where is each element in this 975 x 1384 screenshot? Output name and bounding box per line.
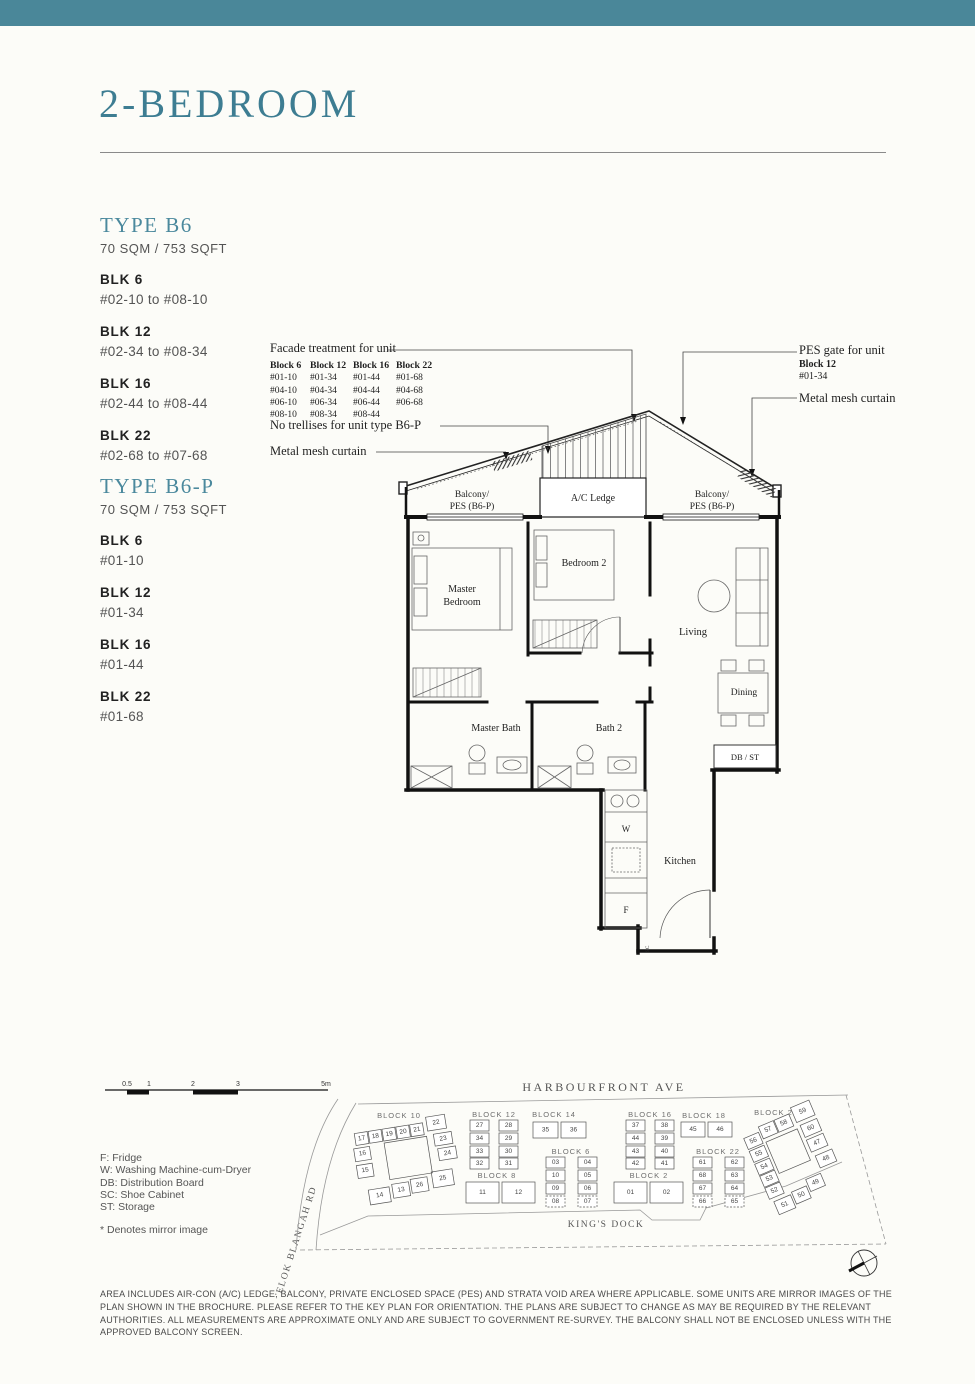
facade-label: Facade treatment for unit	[270, 341, 441, 355]
balcony-left-label2: PES (B6-P)	[450, 501, 495, 512]
type-b6-heading: TYPE B6	[100, 213, 270, 237]
block-22: BLOCK 22 61 62 68 63 67 64 66 65	[693, 1147, 744, 1207]
master-bedroom-label2: Bedroom	[443, 597, 480, 608]
bedside-table	[413, 532, 429, 545]
legend: F: Fridge W: Washing Machine-cum-Dryer D…	[100, 1152, 251, 1237]
blk-name: BLK 6	[100, 533, 270, 549]
svg-text:34: 34	[476, 1135, 484, 1142]
svg-text:33: 33	[476, 1148, 484, 1155]
svg-text:36: 36	[570, 1127, 578, 1134]
facade-cell: #01-44	[353, 372, 396, 384]
svg-text:30: 30	[505, 1148, 513, 1155]
washer-label: W	[622, 824, 631, 834]
trellis	[542, 414, 646, 478]
shoe-cabinet-label: SC	[645, 945, 651, 952]
svg-text:12: 12	[515, 1189, 523, 1196]
svg-text:66: 66	[699, 1198, 707, 1205]
fridge-label: F	[623, 905, 628, 915]
master-bath-label: Master Bath	[471, 723, 520, 734]
db-st-label: DB / ST	[731, 752, 760, 762]
facade-cell: #04-34	[310, 385, 353, 397]
svg-text:32: 32	[476, 1160, 484, 1167]
bath2-label: Bath 2	[596, 723, 622, 734]
svg-text:27: 27	[476, 1122, 484, 1129]
svg-text:BLOCK 8: BLOCK 8	[478, 1171, 517, 1180]
blk-name: BLK 6	[100, 272, 270, 288]
street-harbourfront: HARBOURFRONT AVE	[522, 1080, 685, 1094]
svg-text:BLOCK 10: BLOCK 10	[377, 1111, 421, 1120]
ac-ledge-label: A/C Ledge	[571, 493, 616, 504]
blk-range: #01-10	[100, 553, 270, 569]
legend-item: SC: Shoe Cabinet	[100, 1189, 251, 1201]
blk-range: #01-34	[100, 605, 270, 621]
block-6: BLOCK 6 03 04 10 05 09 06 08 07	[546, 1147, 597, 1207]
blk-group: BLK 22 #01-68	[100, 689, 270, 725]
svg-text:24: 24	[443, 1149, 452, 1157]
svg-text:39: 39	[661, 1135, 669, 1142]
svg-text:1: 1	[147, 1081, 151, 1088]
mesh-left-annotation: Metal mesh curtain	[270, 444, 367, 458]
svg-text:26: 26	[415, 1181, 424, 1189]
facade-cell: #06-44	[353, 397, 396, 409]
street-kings-dock: KING'S DOCK	[568, 1220, 645, 1230]
svg-text:31: 31	[505, 1160, 513, 1167]
block-10: BLOCK 10 17 18 19 20 21 22 23 24 25 26 1…	[351, 1111, 463, 1206]
svg-text:06: 06	[584, 1185, 592, 1192]
svg-text:BLOCK 12: BLOCK 12	[472, 1110, 516, 1119]
svg-text:42: 42	[632, 1160, 640, 1167]
svg-text:02: 02	[663, 1189, 671, 1196]
svg-text:BLOCK 2: BLOCK 2	[630, 1171, 669, 1180]
dining-label: Dining	[731, 688, 758, 698]
balcony-right-label: Balcony/	[695, 490, 730, 500]
legend-item: F: Fridge	[100, 1152, 251, 1164]
facade-col-header: Block 22	[396, 360, 441, 372]
blk-name: BLK 12	[100, 585, 270, 601]
blk-group: BLK 12 #01-34	[100, 585, 270, 621]
svg-text:01: 01	[627, 1189, 635, 1196]
blk-name: BLK 16	[100, 637, 270, 653]
svg-text:03: 03	[552, 1159, 560, 1166]
blk-range: #02-34 to #08-34	[100, 344, 270, 360]
blk-name: BLK 22	[100, 428, 270, 444]
svg-text:08: 08	[552, 1198, 560, 1205]
svg-text:BLOCK 6: BLOCK 6	[552, 1147, 591, 1156]
svg-text:20: 20	[399, 1128, 408, 1136]
svg-text:62: 62	[731, 1159, 739, 1166]
sofa	[736, 548, 768, 646]
svg-text:22: 22	[432, 1119, 441, 1127]
facade-cell: #06-68	[396, 397, 441, 409]
svg-text:63: 63	[731, 1172, 739, 1179]
svg-text:18: 18	[371, 1132, 380, 1140]
blk-group: BLK 12 #02-34 to #08-34	[100, 324, 270, 360]
interior-walls	[408, 523, 652, 790]
svg-text:44: 44	[632, 1135, 640, 1142]
svg-text:67: 67	[699, 1185, 707, 1192]
facade-col-header: Block 12	[310, 360, 353, 372]
living-label: Living	[679, 627, 708, 638]
no-trellis-annotation: No trellises for unit type B6-P	[270, 418, 421, 432]
blk-name: BLK 22	[100, 689, 270, 705]
svg-text:38: 38	[661, 1122, 669, 1129]
svg-text:28: 28	[505, 1122, 513, 1129]
svg-text:45: 45	[689, 1126, 697, 1133]
mirror-note: * Denotes mirror image	[100, 1224, 251, 1236]
master-bath-fixtures	[411, 745, 527, 788]
svg-text:35: 35	[542, 1127, 550, 1134]
svg-text:64: 64	[731, 1185, 739, 1192]
bath2-fixtures	[538, 745, 636, 788]
svg-text:13: 13	[397, 1186, 406, 1194]
facade-cell: #01-68	[396, 372, 441, 384]
svg-text:3: 3	[236, 1081, 240, 1088]
svg-text:65: 65	[731, 1198, 739, 1205]
svg-text:21: 21	[413, 1126, 422, 1134]
svg-text:04: 04	[584, 1159, 592, 1166]
legend-item: W: Washing Machine-cum-Dryer	[100, 1164, 251, 1176]
pes-gate-annotation: PES gate for unit Block 12 #01-34	[799, 343, 885, 383]
blk-group: BLK 6 #02-10 to #08-10	[100, 272, 270, 308]
block-14: BLOCK 14 35 36	[532, 1110, 586, 1138]
svg-text:40: 40	[661, 1148, 669, 1155]
blk-range: #02-44 to #08-44	[100, 396, 270, 412]
blk-name: BLK 16	[100, 376, 270, 392]
entrance-door	[660, 890, 710, 938]
blk-group: BLK 6 #01-10	[100, 533, 270, 569]
legend-item: DB: Distribution Board	[100, 1177, 251, 1189]
svg-text:0.5: 0.5	[122, 1081, 132, 1088]
block-2: BLOCK 2 01 02	[614, 1171, 683, 1203]
svg-text:5m: 5m	[321, 1081, 331, 1088]
facade-cell: #01-10	[270, 372, 310, 384]
blk-group: BLK 16 #02-44 to #08-44	[100, 376, 270, 412]
blk-group: BLK 22 #02-68 to #07-68	[100, 428, 270, 464]
round-table	[698, 580, 730, 612]
facade-table: Block 6 Block 12 Block 16 Block 22 #01-1…	[270, 360, 441, 421]
facade-cell: #04-10	[270, 385, 310, 397]
svg-text:41: 41	[661, 1160, 669, 1167]
mesh-right-annotation: Metal mesh curtain	[799, 391, 896, 405]
facade-cell: #06-34	[310, 397, 353, 409]
balcony-right-label2: PES (B6-P)	[690, 501, 735, 512]
svg-text:43: 43	[632, 1148, 640, 1155]
metal-mesh-right	[737, 468, 776, 497]
block-16: BLOCK 16 37 38 44 39 43 40 42 41	[626, 1110, 674, 1169]
facade-cell: #04-44	[353, 385, 396, 397]
svg-text:29: 29	[505, 1135, 513, 1142]
facade-cell: #04-68	[396, 385, 441, 397]
type-b6p-area: 70 SQM / 753 SQFT	[100, 502, 270, 517]
blk-range: #01-44	[100, 657, 270, 673]
svg-text:09: 09	[552, 1185, 560, 1192]
block-20: BLOCK 20 56 55 54 53 52 51 57 58 59	[740, 1099, 848, 1216]
svg-text:19: 19	[385, 1130, 394, 1138]
svg-text:11: 11	[479, 1189, 486, 1196]
wardrobe-master	[413, 668, 481, 697]
legend-item: ST: Storage	[100, 1201, 251, 1213]
facade-cell: #06-10	[270, 397, 310, 409]
svg-text:10: 10	[552, 1172, 560, 1179]
master-bedroom-label: Master	[448, 584, 476, 595]
svg-text:BLOCK 22: BLOCK 22	[696, 1147, 740, 1156]
street-telok-blangah: TELOK BLANGAH RD	[273, 1185, 319, 1295]
sidebar: TYPE B6 70 SQM / 753 SQFT BLK 6 #02-10 t…	[100, 213, 270, 725]
balcony-left-label: Balcony/	[455, 490, 490, 500]
floor-plan: Balcony/ PES (B6-P) A/C Ledge Balcony/ P…	[265, 340, 895, 988]
blk-range: #02-68 to #07-68	[100, 448, 270, 464]
block-8: BLOCK 8 11 12	[466, 1171, 535, 1203]
disclaimer: AREA INCLUDES AIR-CON (A/C) LEDGE, BALCO…	[100, 1288, 895, 1339]
wardrobe-bedroom2	[533, 620, 597, 648]
facade-col-header: Block 16	[353, 360, 396, 372]
type-b6-area: 70 SQM / 753 SQFT	[100, 241, 270, 256]
svg-text:BLOCK 14: BLOCK 14	[532, 1110, 576, 1119]
svg-text:23: 23	[439, 1135, 448, 1143]
page-title: 2-BEDROOM	[99, 80, 359, 127]
svg-text:68: 68	[699, 1172, 707, 1179]
svg-text:14: 14	[376, 1191, 385, 1199]
svg-text:37: 37	[632, 1122, 640, 1129]
type-b6p-heading: TYPE B6-P	[100, 474, 270, 498]
facade-annotation: Facade treatment for unit Block 6 Block …	[270, 341, 441, 421]
block-12: BLOCK 12 27 28 34 29 33 30 32 31	[470, 1110, 518, 1169]
divider	[100, 152, 886, 153]
scale-bar: 0.5 1 2 3 5m	[105, 1081, 331, 1095]
svg-text:2: 2	[191, 1081, 195, 1088]
svg-text:BLOCK 18: BLOCK 18	[682, 1111, 726, 1120]
svg-text:17: 17	[357, 1134, 366, 1142]
svg-text:16: 16	[358, 1149, 367, 1157]
bedroom2-label: Bedroom 2	[562, 558, 607, 569]
facade-cell: #01-34	[310, 372, 353, 384]
svg-text:61: 61	[699, 1159, 707, 1166]
kitchen-label: Kitchen	[664, 856, 696, 867]
block-18: BLOCK 18 45 46	[681, 1111, 732, 1137]
blk-range: #02-10 to #08-10	[100, 292, 270, 308]
svg-text:25: 25	[439, 1174, 448, 1182]
svg-text:07: 07	[584, 1198, 592, 1205]
svg-text:15: 15	[361, 1166, 370, 1174]
blk-group: BLK 16 #01-44	[100, 637, 270, 673]
svg-text:05: 05	[584, 1172, 592, 1179]
svg-text:46: 46	[716, 1126, 724, 1133]
svg-text:BLOCK 16: BLOCK 16	[628, 1110, 672, 1119]
blk-range: #01-68	[100, 709, 270, 725]
facade-col-header: Block 6	[270, 360, 310, 372]
blk-name: BLK 12	[100, 324, 270, 340]
top-accent-band	[0, 0, 975, 26]
compass-icon	[849, 1250, 877, 1276]
